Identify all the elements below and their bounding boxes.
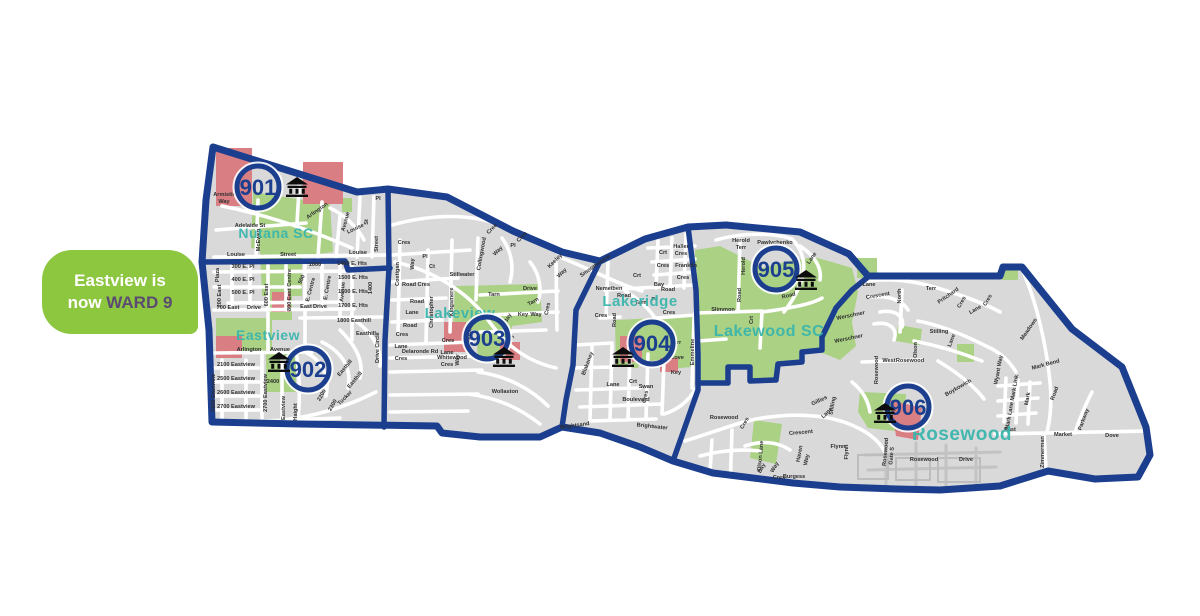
eastview-ward9-callout: Eastview is now WARD 9 <box>42 250 198 334</box>
street-label: Wollaston <box>492 389 519 395</box>
ward-number: 905 <box>758 257 795 282</box>
street-label: Haight <box>293 403 299 421</box>
street-label: Drive <box>959 457 973 463</box>
street-label: Cres <box>595 313 607 319</box>
street-label: Emmeline <box>690 339 696 365</box>
street-label: 400 E. Pl <box>231 277 254 283</box>
street-label: Cres <box>675 251 687 257</box>
street-label: Key <box>671 370 682 376</box>
street-label: 1400 <box>368 282 374 294</box>
street-label: Ct <box>429 264 435 270</box>
street-label: 300 E. Pl <box>231 264 254 270</box>
street-label: Terr <box>736 245 747 251</box>
street-label: Drive <box>313 304 327 310</box>
street-label: Cres <box>441 362 453 368</box>
neighborhood-label: Eastview <box>236 327 300 343</box>
street-label: Franklin <box>675 263 697 269</box>
street-label: Key <box>518 312 529 318</box>
callout-line2: now WARD 9 <box>68 292 173 314</box>
street-label: Road Cres <box>402 282 430 288</box>
street-label: Road <box>403 323 418 329</box>
street-label: Lane <box>405 310 418 316</box>
street-label: North <box>897 288 903 303</box>
street-label: Road <box>410 299 425 305</box>
street-label: Rosewood <box>710 415 739 421</box>
street-label: Road <box>612 312 618 327</box>
street-label: Cres <box>657 263 669 269</box>
street-label: Pl <box>375 196 381 202</box>
street-label: Easthill <box>356 331 376 337</box>
street-label: St <box>364 219 370 225</box>
street-label: Street <box>374 236 380 252</box>
street-label: Burgess <box>783 474 805 480</box>
street-label: Rosewood <box>874 355 880 384</box>
street-label: Louise <box>227 252 245 258</box>
street-label: Cres <box>398 240 410 246</box>
street-label: Whitewood <box>437 355 467 361</box>
street-label: 2600 Eastview <box>217 390 256 396</box>
ward-number: 901 <box>240 175 277 200</box>
street-label: Way <box>530 312 542 318</box>
street-label: 2500 Eastview <box>217 376 256 382</box>
street-label: Costigan <box>395 261 401 286</box>
street-label: 2100 Eastview <box>217 362 256 368</box>
ward9-highlight: WARD 9 <box>106 293 172 312</box>
street-label: Cres <box>663 310 675 316</box>
street-label: 2400 <box>267 379 279 385</box>
street-label: Herold <box>741 257 747 275</box>
street-label: Lane <box>394 344 407 350</box>
street-label: Flynn <box>844 444 850 459</box>
street-label: Swan <box>639 384 654 390</box>
street-label: 600 East <box>264 284 270 307</box>
ward-number: 904 <box>634 331 671 356</box>
street-label: Drive <box>523 286 537 292</box>
street-label: Tarn <box>488 292 500 298</box>
street-label: Herold <box>732 238 750 244</box>
street-label: Rosewood <box>896 358 925 364</box>
street-label: 1700 E. Hts <box>338 303 368 309</box>
street-label: Lane <box>606 382 619 388</box>
street-label: 800 East Centre <box>287 269 293 311</box>
street-label: Cres <box>442 338 454 344</box>
street-label: Louise <box>349 250 367 256</box>
callout-line1: Eastview is <box>74 270 166 292</box>
neighborhood-label: Nutana SC <box>238 225 313 241</box>
street-label: Haller <box>673 244 689 250</box>
street-label: Crt <box>629 379 637 385</box>
street-label: Road <box>737 287 743 302</box>
street-label: 2700 Eastview <box>217 404 256 410</box>
neighborhood-label: Lakeridge <box>602 293 677 310</box>
street-label: Plaza <box>215 267 221 282</box>
street-label: West <box>882 358 895 364</box>
street-label: Pl <box>510 243 516 249</box>
street-label: Arlington <box>237 347 262 353</box>
neighborhood-label: Rosewood <box>912 424 1012 445</box>
street-label: 2100 Eastview <box>211 373 217 412</box>
street-label: Circle <box>375 332 381 348</box>
street-label: Rosewood <box>910 457 939 463</box>
ward-number: 902 <box>290 357 327 382</box>
street-label: 500 E. Pl <box>231 290 254 296</box>
ward-number: 903 <box>469 326 506 351</box>
street-label: Olson <box>913 341 919 357</box>
street-label: Stilling <box>930 329 949 335</box>
ward-number: 906 <box>890 395 927 420</box>
street-label: Terr <box>926 286 937 292</box>
street-label: Street <box>280 252 296 258</box>
street-label: Dove <box>1105 433 1119 439</box>
street-label: 1800 Easthill <box>337 318 371 324</box>
street-label: Market <box>1054 432 1072 438</box>
street-label: 200 East <box>217 285 223 308</box>
street-label: 1600 E. Hts <box>338 289 368 295</box>
street-label: Way <box>410 257 416 269</box>
street-label: Cres <box>395 356 407 362</box>
street-label: Boulevard <box>622 397 650 403</box>
neighborhood-label: Lakewood SC <box>714 323 824 340</box>
street-label: 1000 <box>309 262 321 268</box>
street-label: Cres <box>677 275 689 281</box>
street-label: East <box>300 304 312 310</box>
street-label: Zimmerman <box>1040 436 1046 468</box>
street-label: Drive <box>247 305 261 311</box>
street-label: 700 East <box>217 305 240 311</box>
street-label: Pl <box>422 254 428 260</box>
street-label: 1500 E. Hts <box>338 275 368 281</box>
street-label: Way <box>218 199 230 205</box>
street-label: Cres <box>396 332 408 338</box>
street-label: Nemeiben <box>596 286 623 292</box>
street-label: Crt <box>659 250 667 256</box>
street-label: Eastview <box>281 395 287 420</box>
street-label: Drive <box>375 349 381 363</box>
street-label: Avenue <box>270 347 290 353</box>
street-label: 1400 E. Hts <box>337 261 367 267</box>
street-label: Slimmon <box>711 307 735 313</box>
street-label: Crt <box>633 273 641 279</box>
street-label: Stillwater <box>450 272 476 278</box>
street-label: Cres <box>773 475 785 481</box>
street-label: Lane <box>862 282 875 288</box>
ward-map-page: ArmisticeWayAdelaide StMcEwenLouiseStree… <box>0 0 1200 616</box>
